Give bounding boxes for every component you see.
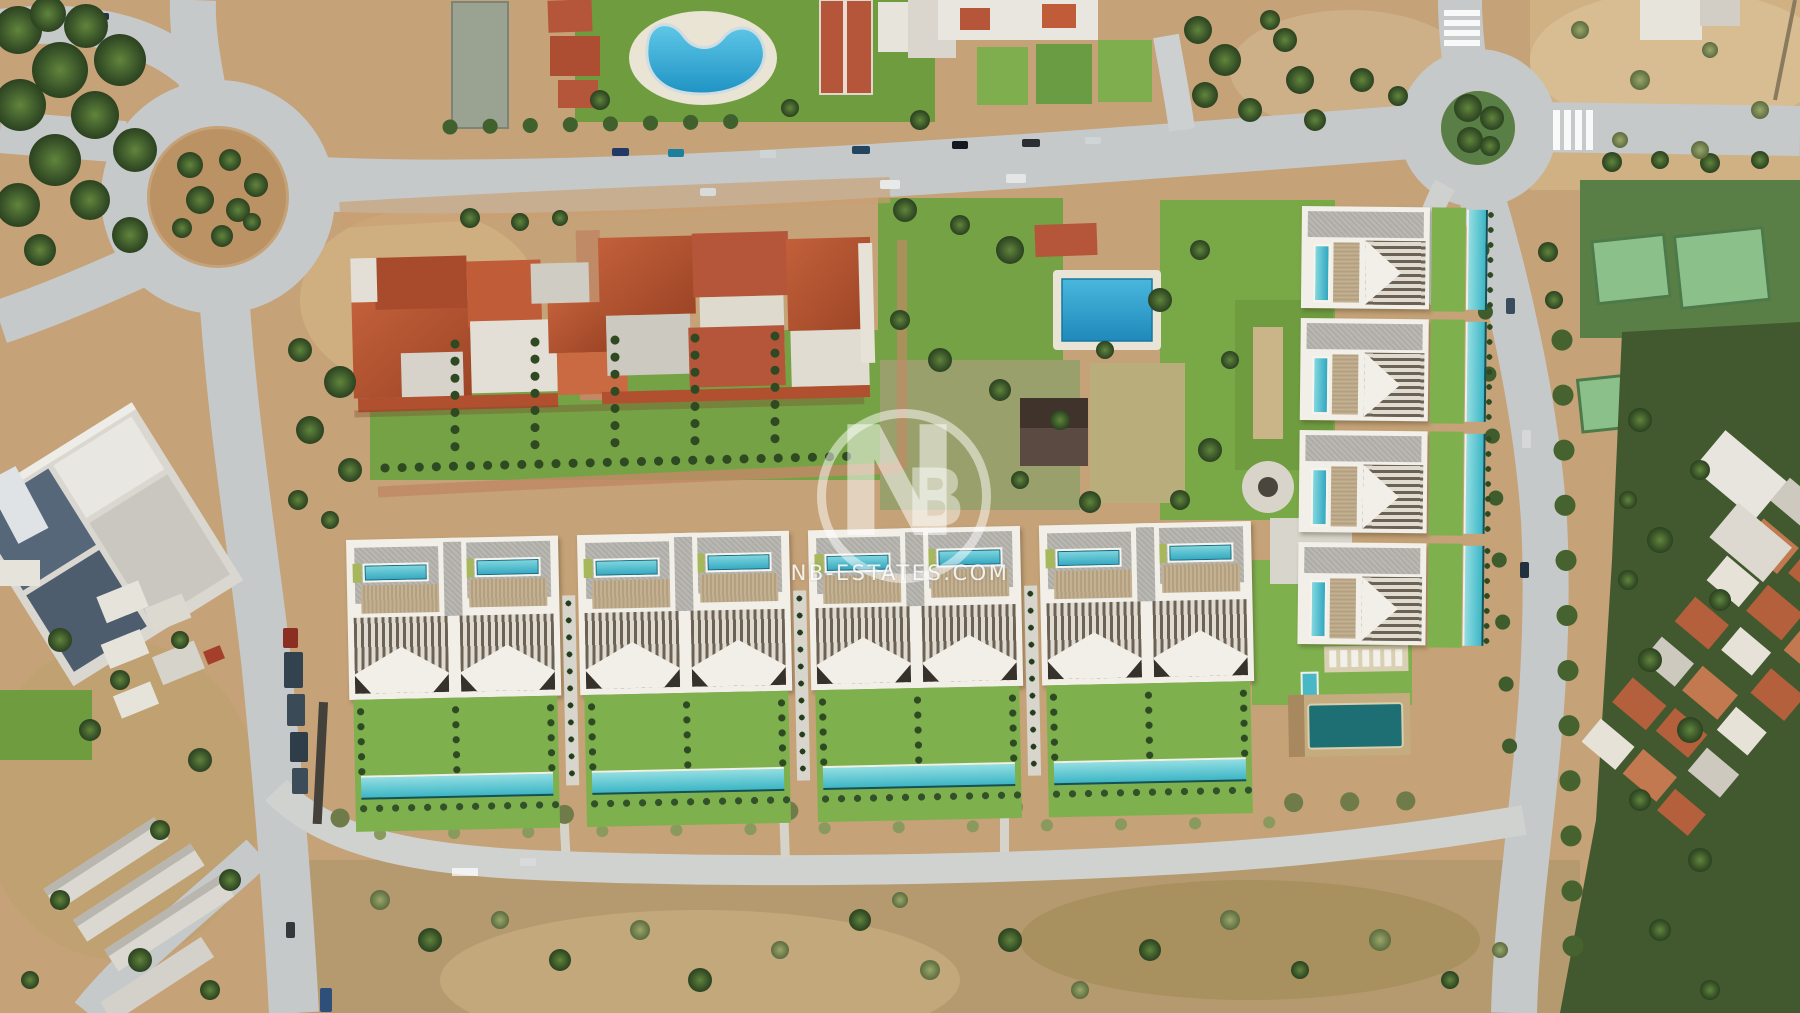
garden-lap-pool [1054, 757, 1246, 785]
hedge [448, 702, 464, 782]
aerial-photo-scene: N B NB-ESTATES.COM [0, 0, 1800, 1013]
pergola-louvers [1046, 599, 1248, 679]
villa-garden [353, 696, 560, 832]
hedge [353, 704, 369, 780]
dry-strip [1253, 327, 1283, 439]
gravel-roof [1307, 323, 1423, 350]
villa-block [346, 536, 564, 832]
rooftop-pool [824, 553, 890, 573]
wood-deck [823, 574, 902, 604]
pergola-louvers [1363, 465, 1424, 530]
red-roof-cabin [1034, 223, 1097, 257]
rooftop-pool [936, 547, 1002, 567]
wood-deck [1329, 578, 1356, 638]
wood-deck [592, 579, 671, 609]
hedge [774, 695, 790, 771]
hedge [1236, 685, 1252, 761]
villa-block [577, 531, 795, 827]
pergola-louvers [1364, 353, 1425, 418]
wood-deck [931, 568, 1010, 598]
cypress-path [562, 595, 579, 785]
shared-pool [1308, 703, 1403, 749]
wood-deck [1333, 242, 1360, 302]
rooftop-pool [362, 562, 428, 582]
villa-structure [577, 531, 792, 695]
pergola-louvers [585, 609, 787, 689]
villa-structure [346, 536, 561, 700]
villa-structure [1297, 542, 1426, 645]
rooftop-pool [1312, 356, 1330, 414]
wood-deck [700, 573, 779, 603]
villa-structure [1300, 318, 1429, 421]
cypress-path [1024, 586, 1041, 776]
hedge [1005, 690, 1021, 766]
pergola-louvers [1365, 241, 1426, 306]
roof-lawn-strip [1045, 549, 1054, 568]
garden-lap-pool [592, 767, 784, 795]
rooftop-pool [474, 557, 540, 577]
gravel-roof [1308, 211, 1424, 238]
tennis-court [1674, 228, 1769, 309]
rooftop-pool [705, 552, 771, 572]
hedge-row [1483, 432, 1494, 538]
garden-pool [1062, 279, 1152, 341]
villa-structure [1299, 430, 1428, 533]
rooftop-pool [593, 557, 659, 577]
villa-garden [1430, 319, 1465, 423]
villa-block [1301, 206, 1494, 314]
villa-block [1297, 542, 1490, 650]
wood-deck [1331, 466, 1358, 526]
villa-block [1300, 318, 1493, 426]
hedge [910, 692, 926, 772]
wood-deck [1332, 354, 1359, 414]
wood-deck [1162, 563, 1241, 593]
wood-deck [469, 578, 548, 608]
wood-deck [361, 584, 440, 614]
roof-lawn-strip [814, 554, 823, 573]
worn-field [1090, 363, 1185, 503]
hedge-row [586, 793, 790, 812]
hedge-row [355, 798, 559, 817]
villa-block [1039, 521, 1257, 817]
hedge [543, 700, 559, 776]
pergola-louvers [816, 604, 1018, 684]
cypress-path [793, 590, 810, 780]
villa-block [1299, 430, 1492, 538]
villa-garden [1429, 431, 1464, 535]
rooftop-pool [1055, 548, 1121, 568]
villa-garden [815, 686, 1022, 822]
rooftop-pool [1313, 244, 1331, 302]
gravel-roof [1305, 435, 1421, 462]
garden-lap-pool [823, 762, 1015, 790]
hedge-row [1481, 544, 1492, 650]
tennis-court [1592, 234, 1670, 303]
villa-structure [1301, 206, 1430, 309]
villa-structure [808, 526, 1023, 690]
hedge-row [1048, 783, 1252, 802]
villa-column-right [1297, 206, 1494, 654]
pergola-louvers [1361, 577, 1422, 642]
old-sport-field [452, 2, 508, 128]
villa-garden [1427, 543, 1462, 647]
roof-lawn-strip [583, 559, 592, 578]
hedge [584, 699, 600, 775]
garden-lap-pool [361, 772, 553, 800]
terrain-layer [0, 0, 1800, 1013]
villa-row-center [346, 521, 1257, 832]
hedge-row [817, 788, 1021, 807]
hedge [1046, 689, 1062, 765]
hedge [679, 697, 695, 777]
hedge-row [1485, 208, 1496, 314]
gravel-roof [1304, 547, 1420, 574]
villa-garden [1431, 207, 1466, 311]
rooftop-pool [1309, 580, 1327, 638]
villa-structure [1039, 521, 1254, 685]
wood-deck [1054, 570, 1133, 600]
hedge [1141, 687, 1157, 767]
villa-garden [584, 691, 791, 827]
hedge [815, 694, 831, 770]
pergola-louvers [354, 614, 556, 694]
villa-block [808, 526, 1026, 822]
villa-garden [1046, 681, 1253, 817]
hedge-row [1484, 320, 1495, 426]
rooftop-pool [1311, 468, 1329, 526]
rooftop-pool [1167, 542, 1233, 562]
roof-lawn-strip [353, 564, 362, 583]
